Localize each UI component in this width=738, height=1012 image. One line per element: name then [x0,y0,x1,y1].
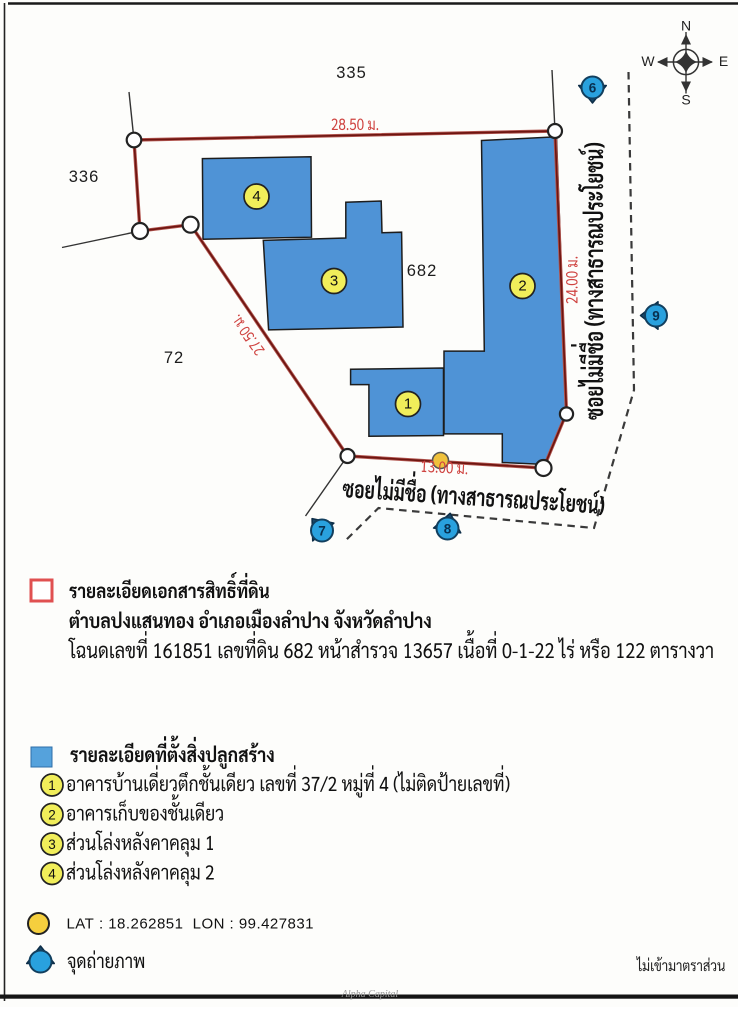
svg-text:1: 1 [404,396,412,413]
svg-text:2: 2 [518,278,526,295]
svg-text:72: 72 [164,349,184,367]
svg-text:6: 6 [589,81,597,96]
svg-text:4: 4 [48,867,56,882]
svg-text:336: 336 [69,168,100,186]
svg-text:7: 7 [318,524,326,539]
svg-text:682: 682 [407,262,438,280]
svg-text:335: 335 [336,64,367,82]
svg-text:1: 1 [48,778,56,793]
svg-text:3: 3 [330,273,338,290]
svg-text:S: S [681,92,690,108]
svg-text:Alpha Capital: Alpha Capital [341,989,399,1000]
svg-text:E: E [719,53,728,69]
svg-text:4: 4 [252,188,260,205]
svg-text:9: 9 [652,309,660,324]
svg-text:2: 2 [48,808,56,823]
svg-text:3: 3 [48,837,56,852]
svg-text:8: 8 [444,522,452,537]
svg-text:LAT : 18.262851 LON : 99.4278: LAT : 18.262851 LON : 99.427831 [67,916,314,933]
svg-text:N: N [681,18,691,34]
svg-text:W: W [641,53,655,69]
